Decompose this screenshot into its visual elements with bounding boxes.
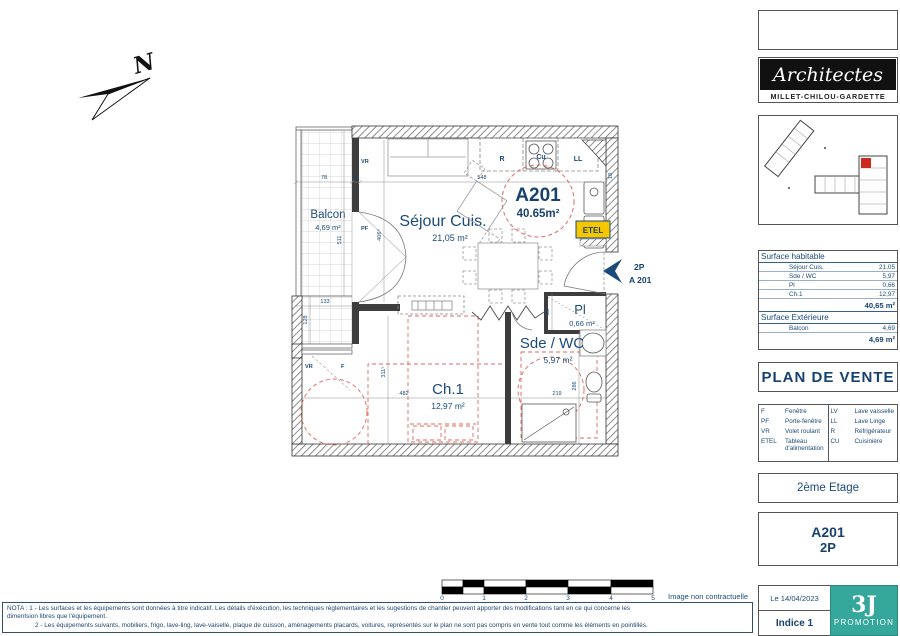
svg-text:219: 219 — [552, 391, 561, 397]
entrance-unit: A 201 — [629, 275, 652, 285]
svg-text:1: 1 — [482, 595, 486, 602]
surface-exterieure-title: Surface Extérieure — [759, 312, 897, 324]
revision-date: Le 14/04/2023 — [758, 585, 831, 611]
unit-id-circle: A201 40.65m² — [502, 165, 574, 237]
scale-bar: 0 1 2 3 4 5 Image non contractuelle — [440, 580, 748, 602]
plan-de-vente-sheet: N Balcon 4,69 m² — [0, 0, 900, 636]
room-label-ch1: Ch.1 — [432, 381, 464, 398]
nota-line-2: dimentsion libres que l'équipement. — [7, 613, 748, 622]
architects-logo: Architectes — [760, 59, 896, 90]
svg-text:286: 286 — [572, 381, 578, 390]
unit-area: 40.65m² — [517, 208, 560, 220]
svg-text:128: 128 — [303, 315, 309, 324]
etel-panel: ETEL — [576, 221, 610, 246]
revision-indice: Indice 1 — [758, 610, 831, 636]
legend-left-column: FFenêtre PFPorte-fenêtre VRVolet roulant… — [759, 405, 829, 461]
svg-text:5: 5 — [651, 595, 655, 602]
svg-text:482: 482 — [399, 391, 408, 397]
svg-text:2: 2 — [524, 595, 528, 602]
architects-box: Architectes MILLET-CHILOU-GARDETTE — [758, 57, 898, 103]
floor-label: 2ème Etage — [758, 473, 898, 503]
architects-script: Architectes — [773, 64, 883, 86]
entrance-type: 2P — [634, 262, 645, 272]
svg-text:78: 78 — [321, 175, 327, 181]
promoter-monogram: 3J — [851, 594, 877, 616]
nota-line-1: NOTA : 1 - Les surfaces et les équipemen… — [7, 605, 748, 614]
surface-table: Surface habitable Séjour Cuis.21,05 Sde … — [758, 250, 898, 350]
tag-vr-balcony: VR — [361, 159, 369, 165]
room-area-balcon: 4,69 m² — [315, 223, 341, 232]
surface-habitable-title: Surface habitable — [759, 251, 897, 263]
table-row: Séjour Cuis.21,05 — [759, 263, 897, 272]
room-label-sde: Sde / WC — [520, 335, 584, 352]
tag-vr-bedroom: VR — [305, 364, 313, 370]
unit-id-label: A201 — [811, 524, 844, 540]
tag-washing-machine: LL — [574, 156, 583, 163]
duct-shaft — [582, 140, 606, 166]
unit-location-marker — [861, 158, 871, 168]
closet: Pl 0,66 m² — [548, 297, 602, 328]
balcony-railing — [296, 130, 301, 296]
bathroom: Sde / WC 5,97 m² — [518, 330, 606, 442]
unit-id: A201 — [515, 185, 561, 206]
room-label-pl: Pl — [574, 302, 586, 317]
svg-text:53: 53 — [545, 309, 551, 315]
tag-cooker: Cu — [536, 154, 545, 161]
room-area-sde: 5,97 m² — [544, 355, 573, 365]
surface-exterieure-total: 4,69 m² — [759, 333, 897, 345]
architects-names: MILLET-CHILOU-GARDETTE — [759, 90, 897, 102]
balcony: Balcon 4,69 m² — [296, 127, 352, 344]
site-plan-thumbnail — [759, 116, 897, 224]
table-row: Balcon4,69 — [759, 324, 897, 333]
empty-title-box — [758, 10, 898, 50]
nota-box: NOTA : 1 - Les surfaces et les équipemen… — [2, 602, 753, 633]
nota-line-3: 2 - Les équipements suivants, mobiliers,… — [7, 622, 748, 631]
disclaimer: Image non contractuelle — [668, 592, 748, 601]
dining-table — [463, 229, 552, 303]
table-row: Ch.112,97 — [759, 290, 897, 299]
promoter-name: PROMOTION — [834, 618, 894, 627]
svg-text:0: 0 — [440, 595, 444, 602]
sofa — [388, 139, 468, 176]
entrance-marker: 2P A 201 — [603, 259, 652, 285]
site-plan-box — [758, 115, 898, 225]
svg-text:511: 511 — [337, 236, 343, 245]
room-area-ch1: 12,97 m² — [431, 401, 465, 411]
floor-plan-drawing: N Balcon 4,69 m² — [0, 0, 757, 602]
svg-text:406⁵: 406⁵ — [376, 229, 383, 241]
unit-summary-box: A201 2P — [758, 512, 898, 566]
north-label: N — [129, 48, 159, 80]
svg-text:133: 133 — [320, 299, 329, 305]
balcony-edge — [296, 127, 352, 130]
svg-text:36: 36 — [353, 175, 359, 181]
tag-refrigerator: R — [499, 156, 504, 163]
tag-etel: ETEL — [583, 226, 604, 235]
svg-text:4: 4 — [609, 595, 613, 602]
room-label-balcon: Balcon — [310, 209, 345, 221]
bedroom-window: VR F — [302, 344, 352, 390]
svg-text:18: 18 — [608, 173, 614, 179]
svg-text:3: 3 — [566, 595, 570, 602]
entrance-door — [564, 252, 606, 294]
legend-box: FFenêtre PFPorte-fenêtre VRVolet roulant… — [758, 404, 898, 462]
surface-habitable-total: 40,65 m² — [759, 299, 897, 312]
room-area-sejour: 21,05 m² — [432, 233, 468, 243]
table-row: Pl0,66 — [759, 281, 897, 290]
north-arrow-icon: N — [78, 48, 159, 120]
tag-pf: PF — [361, 226, 369, 232]
document-title: PLAN DE VENTE — [758, 362, 898, 392]
tag-f-window: F — [341, 364, 345, 370]
svg-text:548: 548 — [477, 175, 486, 181]
room-area-pl: 0,66 m² — [569, 319, 595, 328]
svg-text:311⁵: 311⁵ — [380, 366, 387, 377]
legend-right-column: LVLave vaisselle LLLave Linge RRéfrigéra… — [829, 405, 898, 461]
table-row: Sde / WC5,97 — [759, 272, 897, 281]
promoter-logo: 3J PROMOTION — [830, 585, 898, 636]
unit-type-label: 2P — [820, 540, 836, 555]
